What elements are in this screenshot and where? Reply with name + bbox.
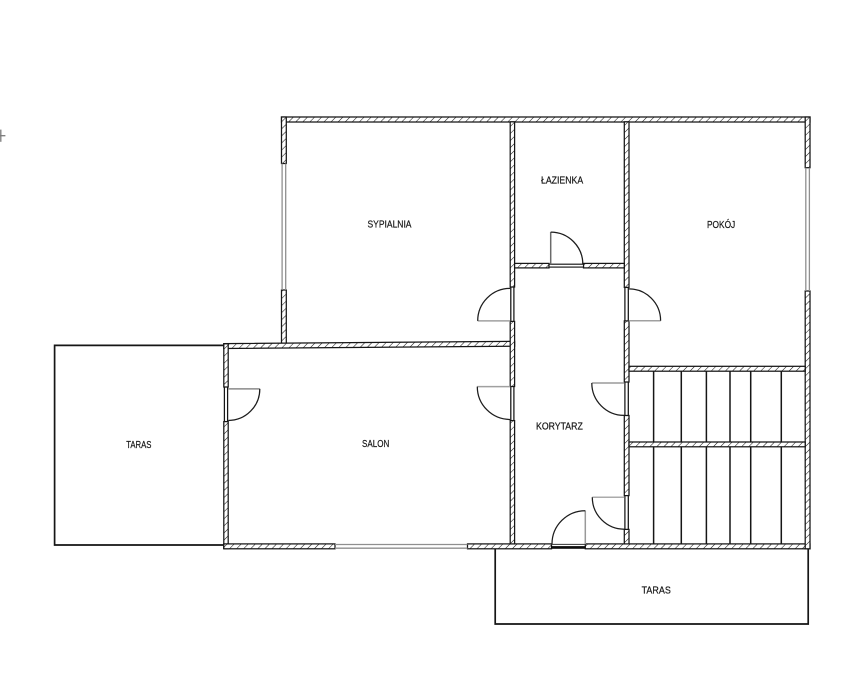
svg-text:SYPIALNIA: SYPIALNIA [368,219,412,230]
svg-text:KORYTARZ: KORYTARZ [536,421,583,432]
svg-text:ŁAZIENKA: ŁAZIENKA [541,176,583,187]
svg-text:TARAS: TARAS [126,440,152,451]
svg-text:SALON: SALON [362,439,389,450]
svg-text:POKÓJ: POKÓJ [707,218,735,231]
svg-text:TARAS: TARAS [642,585,671,596]
